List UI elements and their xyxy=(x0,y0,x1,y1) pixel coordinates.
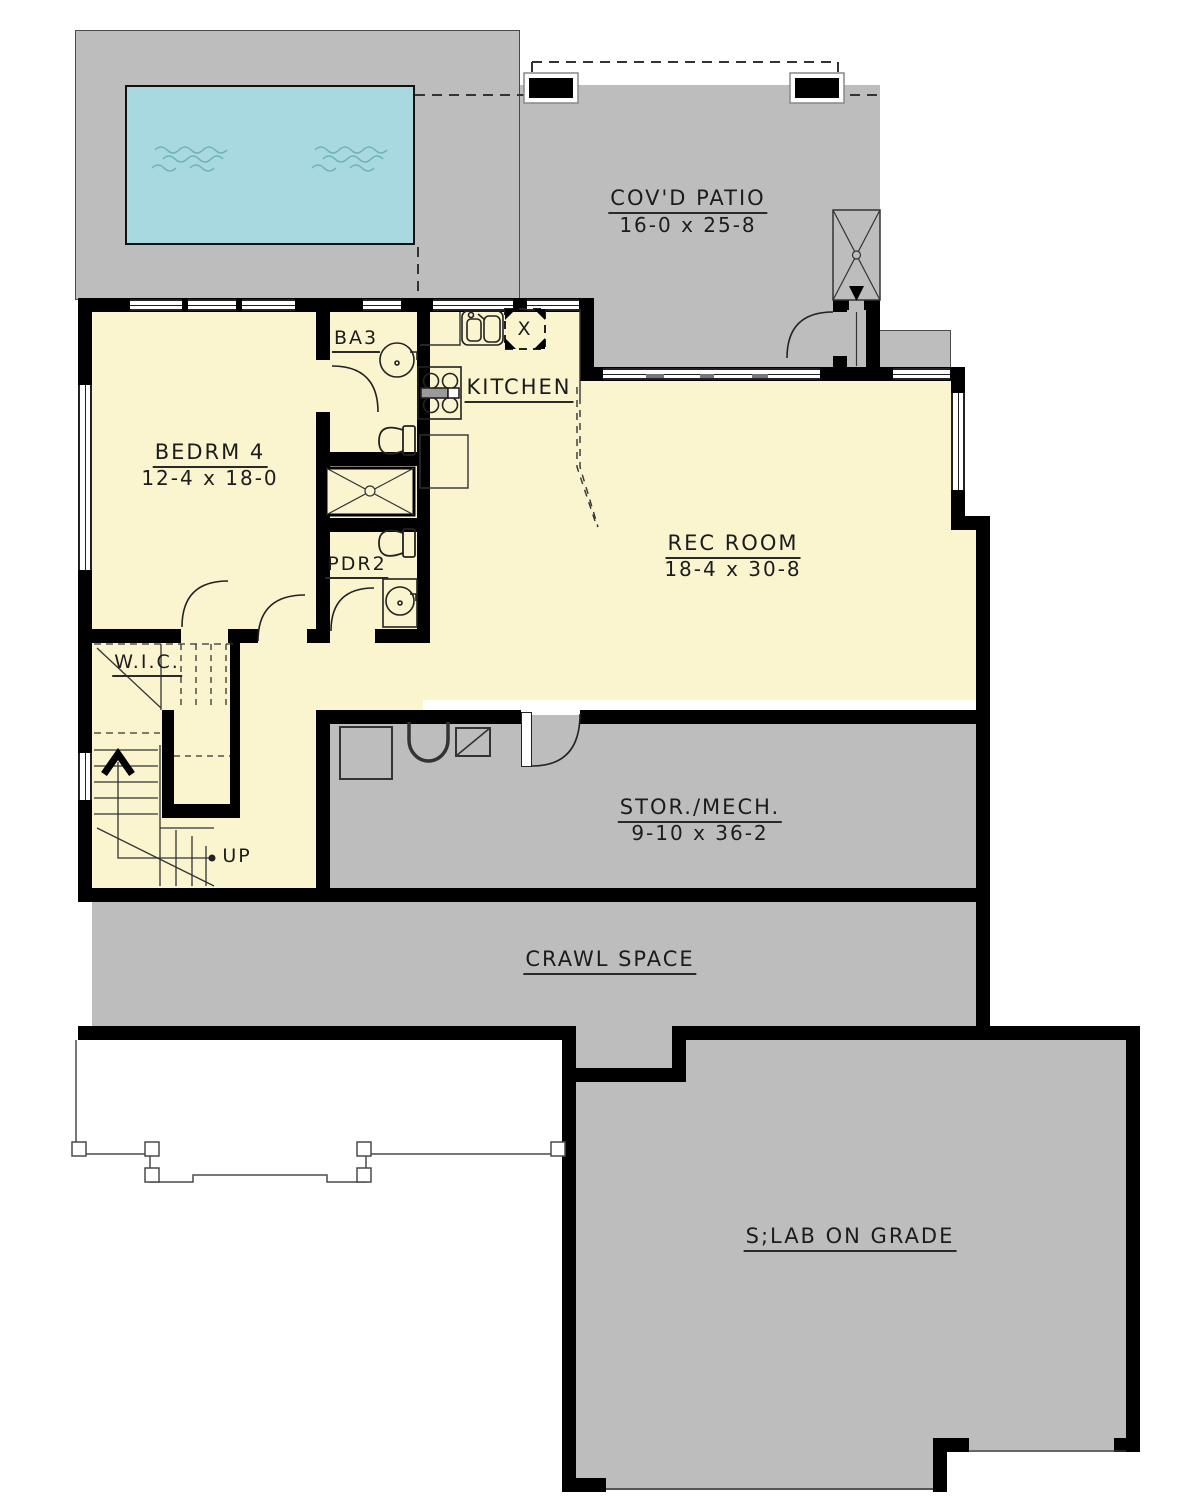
room-dims-covd-patio: 16-0 x 25-8 xyxy=(619,213,756,237)
detail-overlay xyxy=(0,0,1200,1500)
patio-column-posts xyxy=(524,73,844,103)
room-label-slab-on-grade: S;LAB ON GRADE xyxy=(744,1224,957,1248)
kitchen-sink-icon xyxy=(462,311,503,345)
ba3-door-arc xyxy=(332,366,378,412)
ba3-sink-icon xyxy=(380,343,417,377)
room-label-stor-mech: STOR./MECH. xyxy=(618,795,782,819)
room-dims-rec-room: 18-4 x 30-8 xyxy=(664,557,801,581)
stairs-up-label: UP xyxy=(222,845,251,867)
window-ticks xyxy=(646,374,768,378)
room-label-bedrm4: BEDRM 4 xyxy=(153,440,268,464)
ba3-shower-icon xyxy=(326,468,414,515)
hall-door-arc xyxy=(258,595,305,641)
floor-plan: COV'D PATIO 16-0 x 25-8 BA3 KITCHEN BEDR… xyxy=(0,0,1200,1500)
skylight-x-label: X xyxy=(517,318,532,340)
porch-outline xyxy=(72,1040,565,1182)
stairs xyxy=(94,644,236,886)
room-label-kitchen: KITCHEN xyxy=(465,375,574,399)
room-label-pdr2: PDR2 xyxy=(325,551,388,575)
room-dims-stor-mech: 9-10 x 36-2 xyxy=(631,821,768,845)
ba3-toilet-icon xyxy=(379,426,415,455)
storage-equipment-icons xyxy=(340,722,490,779)
pdr2-door-arc xyxy=(331,588,374,631)
slab-bottom-edges xyxy=(606,1451,1126,1489)
stove-icon xyxy=(418,367,461,419)
storage-door-arc xyxy=(532,714,580,766)
pdr2-sink-icon xyxy=(383,579,417,627)
patio-stairs xyxy=(833,210,880,366)
pool-water-waves-icon xyxy=(152,147,387,171)
kitchen-counter-lines xyxy=(420,309,598,527)
patio-door-arc xyxy=(787,312,833,358)
rec-dashed-edge xyxy=(577,387,597,527)
room-label-covd-patio: COV'D PATIO xyxy=(608,186,767,210)
bedroom-door-arc xyxy=(182,581,228,627)
room-label-ba3: BA3 xyxy=(332,325,380,349)
room-label-wic: W.I.C. xyxy=(112,649,182,673)
room-dims-bedrm4: 12-4 x 18-0 xyxy=(141,466,278,490)
room-label-crawl-space: CRAWL SPACE xyxy=(523,947,696,971)
room-label-rec-room: REC ROOM xyxy=(666,531,801,555)
